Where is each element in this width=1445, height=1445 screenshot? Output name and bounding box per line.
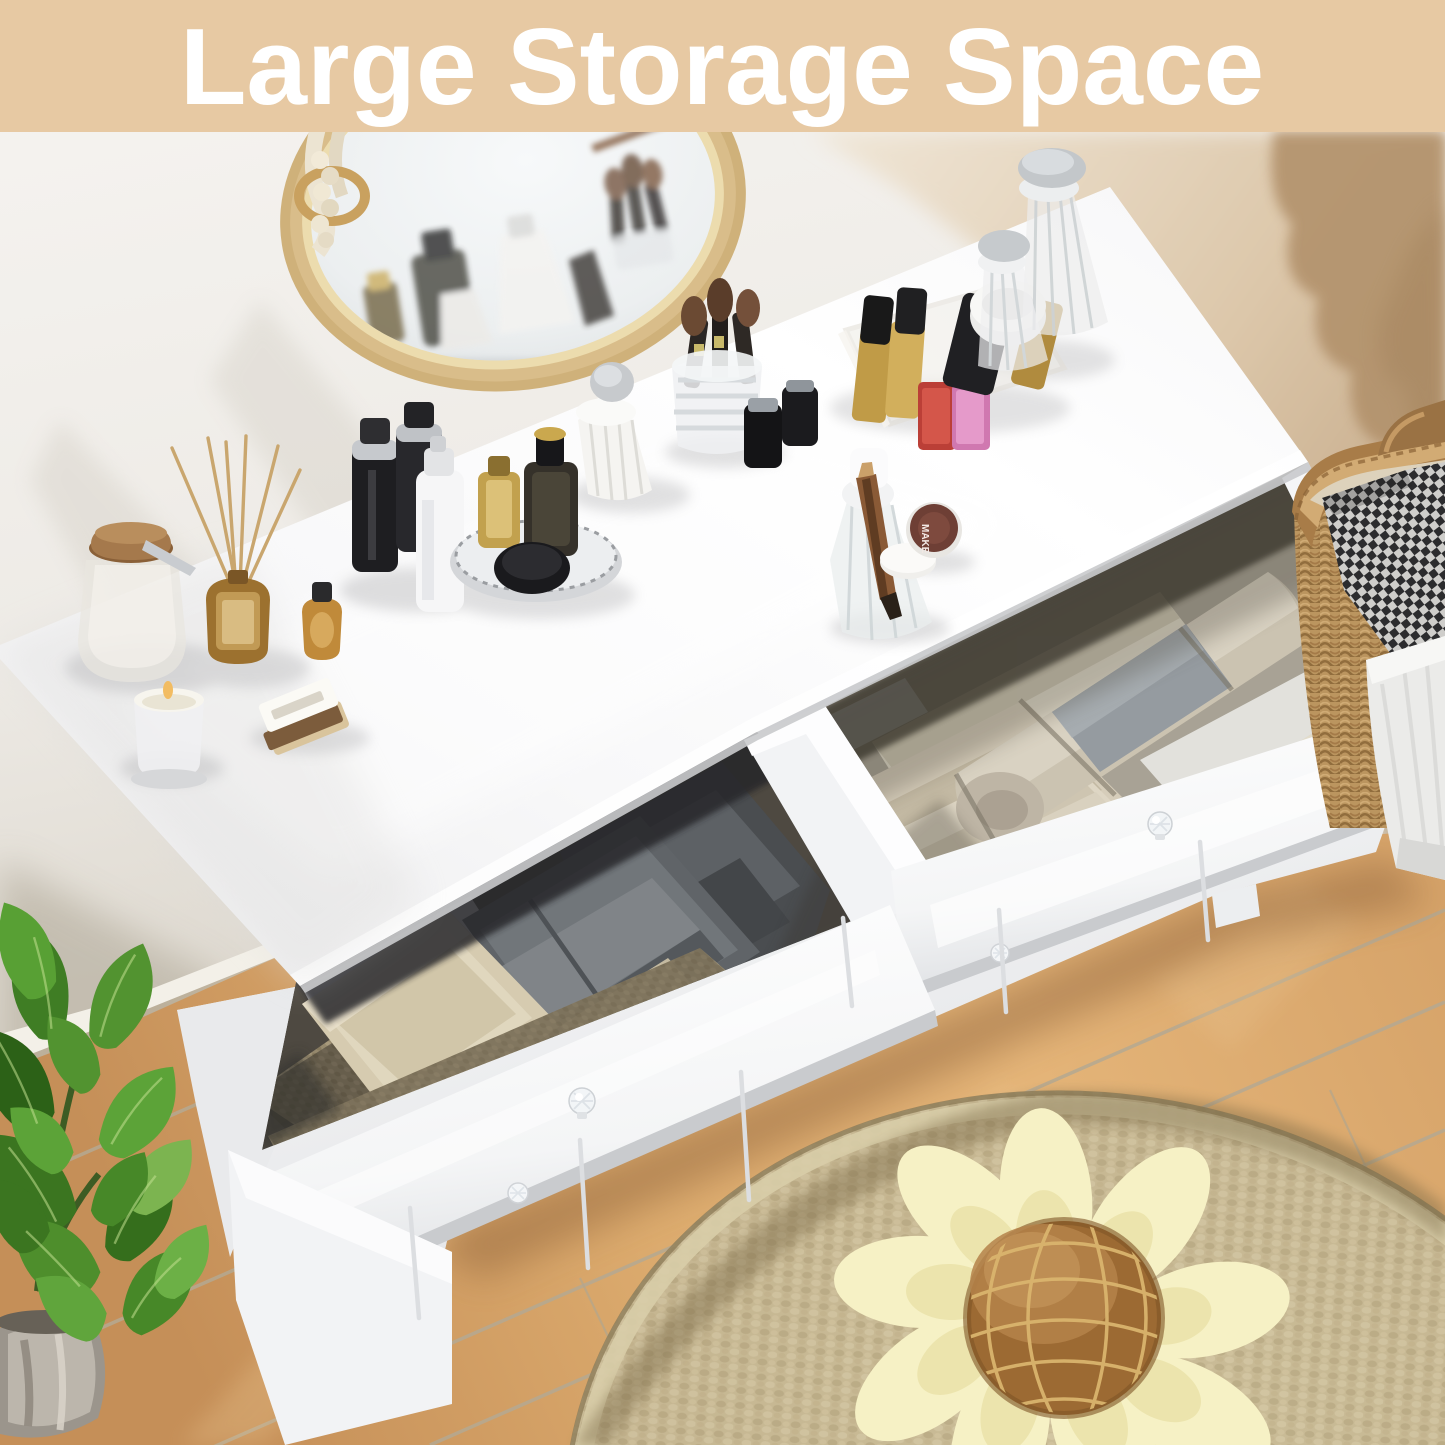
svg-text:Large Storage Space: Large Storage Space <box>180 6 1264 128</box>
svg-text:MAKE: MAKE <box>919 524 930 554</box>
